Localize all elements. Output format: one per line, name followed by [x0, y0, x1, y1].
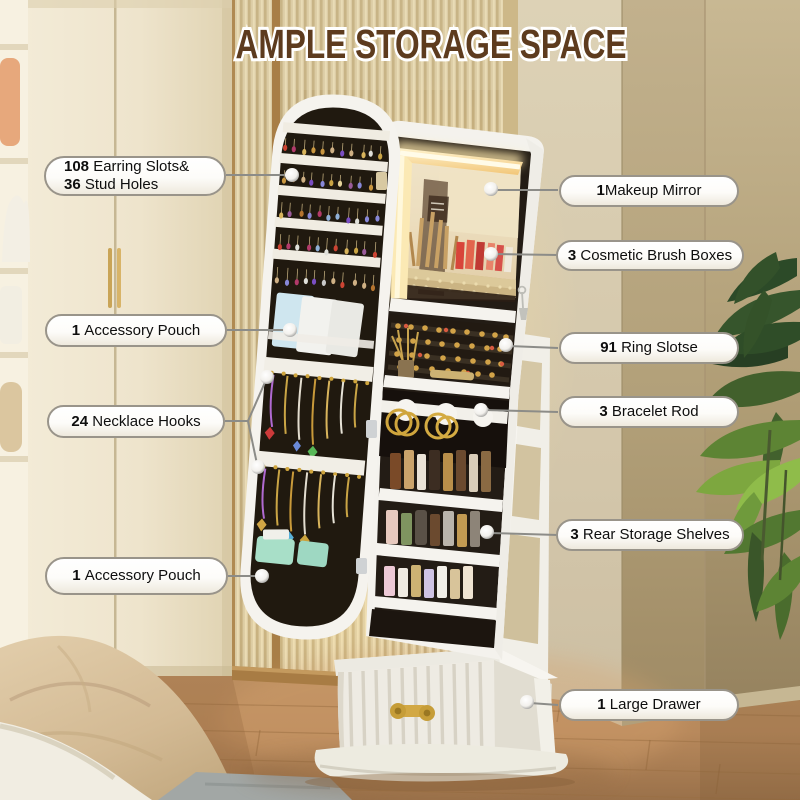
svg-text:AMPLE STORAGE SPACE: AMPLE STORAGE SPACE	[236, 21, 627, 67]
